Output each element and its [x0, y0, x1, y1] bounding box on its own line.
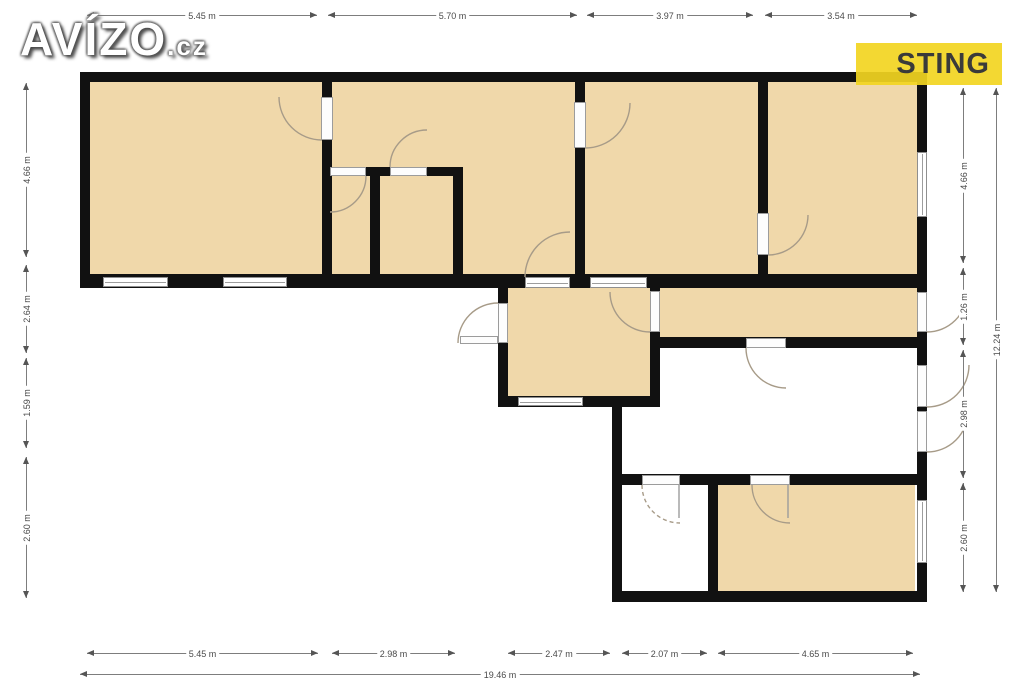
dimension-label: 1.26 m	[959, 290, 969, 324]
dimension-arrow	[700, 650, 707, 656]
dimension-arrow	[960, 338, 966, 345]
dimension-arrow	[913, 671, 920, 677]
dimension-label: 5.45 m	[186, 649, 220, 659]
dimension-arrow	[718, 650, 725, 656]
room-fill	[585, 82, 758, 274]
dimension-arrow	[23, 358, 29, 365]
dimension-arrow	[23, 346, 29, 353]
window	[917, 152, 927, 217]
door-panel	[650, 291, 660, 332]
door-panel	[917, 292, 927, 332]
room-fill	[90, 82, 322, 274]
window	[223, 277, 287, 287]
door-panel	[746, 338, 786, 348]
floorplan-drawing	[0, 0, 1024, 691]
dimension-label: 1.59 m	[22, 386, 32, 420]
dimension-label: 3.97 m	[653, 11, 687, 21]
dimension-arrow	[570, 12, 577, 18]
dimension-arrow	[765, 12, 772, 18]
dimension-label: 2.64 m	[22, 292, 32, 326]
dimension-label: 2.60 m	[22, 511, 32, 545]
dimension-arrow	[910, 12, 917, 18]
dimension-arrow	[23, 591, 29, 598]
dimension-arrow	[960, 256, 966, 263]
door-panel	[321, 97, 333, 140]
dimension-arrow	[960, 585, 966, 592]
dimension-arrow	[23, 457, 29, 464]
avizo-logo-suffix: .cz	[167, 31, 208, 61]
dimension-arrow	[993, 585, 999, 592]
dimension-arrow	[960, 350, 966, 357]
dimension-arrow	[310, 12, 317, 18]
window	[518, 397, 583, 406]
dimension-arrow	[603, 650, 610, 656]
window	[103, 277, 168, 287]
door-panel	[642, 475, 680, 485]
dimension-label: 19.46 m	[481, 670, 520, 680]
dimension-label: 2.98 m	[377, 649, 411, 659]
dimension-arrow	[960, 471, 966, 478]
dimension-arrow	[508, 650, 515, 656]
wall-segment	[80, 72, 90, 288]
avizo-logo-text: AVÍZO	[20, 13, 167, 65]
door-panel	[330, 167, 366, 176]
wall-segment	[370, 167, 380, 288]
dimension-arrow	[328, 12, 335, 18]
dimension-arrow	[23, 441, 29, 448]
window	[590, 277, 647, 288]
dimension-arrow	[23, 265, 29, 272]
window	[917, 500, 927, 563]
door-panel	[917, 411, 927, 452]
dimension-arrow	[311, 650, 318, 656]
room-fill	[508, 288, 650, 396]
dimension-arrow	[960, 88, 966, 95]
dimension-arrow	[587, 12, 594, 18]
sting-logo-badge: STING	[856, 43, 1002, 85]
door-panel	[460, 336, 498, 344]
dimension-label: 2.98 m	[959, 397, 969, 431]
door-panel	[750, 475, 790, 485]
wall-segment	[758, 72, 768, 288]
dimension-arrow	[622, 650, 629, 656]
dimension-arrow	[960, 483, 966, 490]
door-panel	[757, 213, 769, 255]
wall-segment	[80, 72, 927, 82]
window	[525, 277, 570, 288]
dimension-label: 2.47 m	[542, 649, 576, 659]
dimension-arrow	[746, 12, 753, 18]
dimension-arrow	[448, 650, 455, 656]
wall-segment	[453, 167, 463, 288]
avizo-logo: AVÍZO.cz	[20, 16, 208, 62]
wall-segment	[652, 337, 927, 348]
door-panel	[390, 167, 427, 176]
dimension-label: 2.07 m	[648, 649, 682, 659]
dimension-arrow	[332, 650, 339, 656]
dimension-arrow	[80, 671, 87, 677]
dimension-arrow	[23, 83, 29, 90]
wall-segment	[612, 396, 622, 602]
room-fill	[768, 82, 917, 274]
dimension-label: 3.54 m	[824, 11, 858, 21]
wall-segment	[708, 474, 718, 602]
dimension-label: 2.60 m	[959, 521, 969, 555]
dimension-arrow	[23, 250, 29, 257]
door-panel	[498, 303, 508, 343]
dimension-label: 4.65 m	[799, 649, 833, 659]
dimension-label: 12.24 m	[992, 321, 1002, 360]
room-fill	[718, 485, 915, 591]
dimension-label: 5.70 m	[436, 11, 470, 21]
dimension-label: 4.66 m	[22, 153, 32, 187]
dimension-arrow	[87, 650, 94, 656]
dimension-arrow	[960, 268, 966, 275]
dimension-label: 4.66 m	[959, 159, 969, 193]
door-panel	[917, 365, 927, 407]
wall-segment	[612, 591, 927, 602]
dimension-arrow	[906, 650, 913, 656]
room-fill	[660, 288, 917, 337]
dimension-arrow	[993, 88, 999, 95]
floorplan-canvas: 5.45 m5.70 m3.97 m3.54 m5.45 m2.98 m2.47…	[0, 0, 1024, 691]
door-panel	[574, 102, 586, 148]
